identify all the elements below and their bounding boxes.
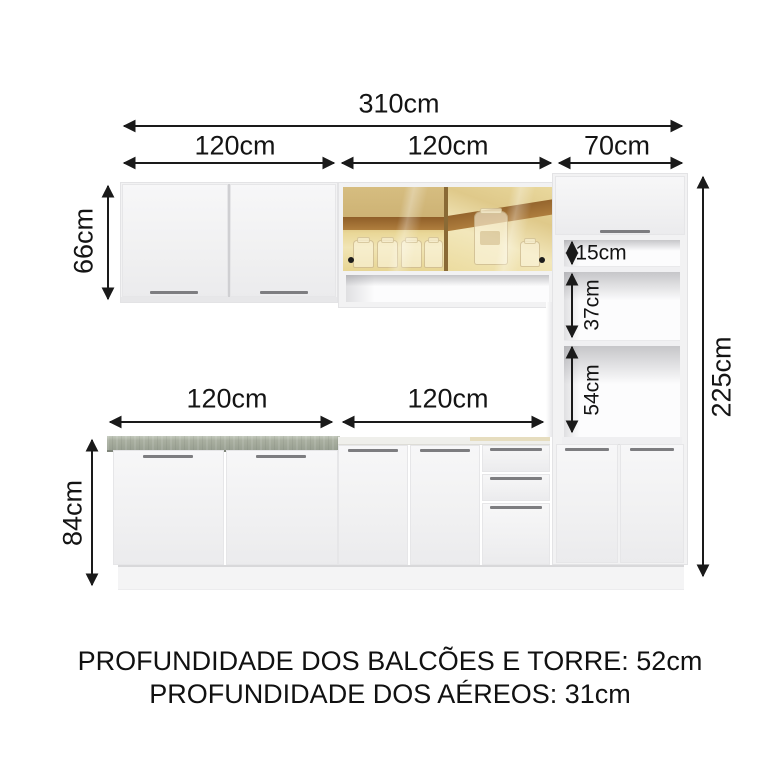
dim-aerial-height-label: 66cm: [71, 208, 98, 274]
dim-base-left-label: 120cm: [186, 386, 267, 413]
dim-niche-54-label: 54cm: [582, 364, 603, 415]
dim-upper-middle-label: 120cm: [407, 133, 488, 160]
dim-upper-right-label: 70cm: [584, 133, 650, 160]
dim-base-middle-label: 120cm: [407, 386, 488, 413]
dim-total-height-label: 225cm: [709, 336, 736, 417]
dim-niche-15-label: 15cm: [575, 243, 626, 264]
dim-total-width-label: 310cm: [358, 91, 439, 118]
product-dimension-diagram: 310cm 120cm 120cm 70cm 66cm 84cm 225cm 1…: [0, 0, 780, 780]
dim-niche-37-label: 37cm: [582, 279, 603, 330]
dim-base-height-label: 84cm: [60, 480, 87, 546]
dim-upper-left-label: 120cm: [194, 133, 275, 160]
